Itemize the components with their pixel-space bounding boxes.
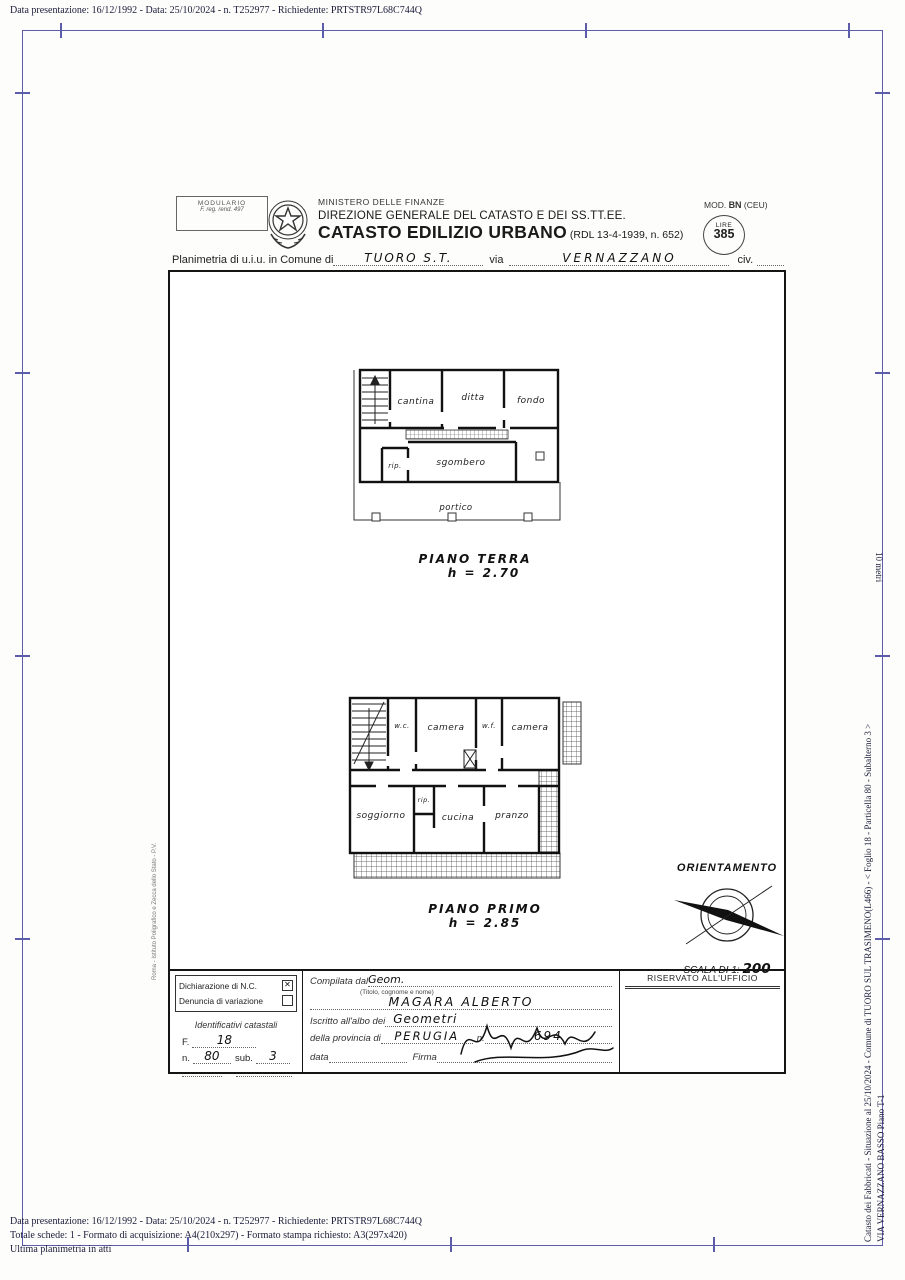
- frame-tick: [15, 655, 30, 657]
- label-via: via: [489, 254, 503, 266]
- frame-tick: [15, 372, 30, 374]
- label-civ: civ.: [737, 254, 753, 266]
- frame-tick: [848, 23, 850, 38]
- intestazione-row: Planimetria di u.i.u. in Comune di TUORO…: [172, 251, 784, 266]
- first-caption-height: h = 2.85: [405, 916, 565, 930]
- room-label-camera2: camera: [512, 723, 549, 733]
- numero-field: 80: [193, 1050, 231, 1064]
- blank-dotted-2: [236, 1068, 292, 1077]
- sub-label: sub.: [235, 1053, 253, 1064]
- first-floor-plan: w.c. camera w.f. camera soggiorno rip. c…: [336, 686, 586, 886]
- nome-field: MAGARA ALBERTO: [310, 996, 612, 1010]
- planimetria-box: cantina ditta fondo rip. sgombero portic…: [168, 270, 786, 1074]
- sub-field: 3: [256, 1050, 290, 1064]
- civ-field: [757, 251, 784, 266]
- bottom-margin-line2: Totale schede: 1 - Formato di acquisizio…: [10, 1230, 407, 1241]
- room-label-sgombero: sgombero: [436, 458, 485, 468]
- right-margin-metadata: Catasto dei Fabbricati - Situazione al 2…: [862, 724, 888, 1242]
- ground-floor-caption: PIANO TERRA h = 2.70: [395, 552, 555, 580]
- top-margin-metadata: Data presentazione: 16/12/1992 - Data: 2…: [10, 5, 422, 16]
- room-label-cantina: cantina: [398, 397, 435, 407]
- room-label-soggiorno: soggiorno: [356, 811, 405, 821]
- via-value: VERNAZZANO: [562, 251, 676, 265]
- bottom-margin-line1: Data presentazione: 16/12/1992 - Data: 2…: [10, 1216, 422, 1227]
- room-label-camera1: camera: [428, 723, 465, 733]
- signature: [455, 1010, 635, 1070]
- scanned-cadastral-document-page: Data presentazione: 16/12/1992 - Data: 2…: [0, 0, 905, 1280]
- compilata-row: Compilata dal Geom.: [310, 973, 612, 987]
- state-emblem-icon: [263, 194, 313, 252]
- provincia-label: della provincia di: [310, 1033, 381, 1044]
- mod-suffix: (CEU): [742, 200, 768, 210]
- frame-tick: [875, 372, 890, 374]
- modulario-line1: MODULARIO: [177, 200, 267, 207]
- nome-row: MAGARA ALBERTO: [310, 996, 612, 1010]
- albo-value: Geometri: [393, 1012, 457, 1026]
- data-label: data: [310, 1052, 329, 1063]
- via-field: VERNAZZANO: [509, 251, 729, 266]
- frame-tick: [322, 23, 324, 38]
- dichiarazione-checkbox: ✕: [282, 980, 293, 991]
- room-label-ditta: ditta: [461, 393, 484, 403]
- room-label-pranzo: pranzo: [494, 811, 529, 821]
- modulario-line2: F. reg. rend. 497: [177, 207, 267, 213]
- form-divider-1: [302, 969, 303, 1072]
- orientation-panel: ORIENTAMENTO SCALA DI 1: 200: [662, 862, 792, 977]
- mod-bn-label: MOD. BN (CEU): [704, 200, 768, 210]
- denuncia-label: Denuncia di variazione: [179, 996, 263, 1006]
- first-caption-title: PIANO PRIMO: [405, 902, 565, 916]
- right-margin-line2: VIA VERNAZZANO BASSO Piano T-1: [875, 724, 888, 1242]
- numero-value: 80: [204, 1049, 219, 1063]
- label-comune: Planimetria di u.i.u. in Comune di: [172, 254, 333, 266]
- declaration-row: Dichiarazione di N.C. ✕: [179, 978, 293, 993]
- room-label-wf: w.f.: [482, 722, 496, 730]
- compilata-label: Compilata dal: [310, 976, 368, 987]
- room-label-rip2: rip.: [418, 796, 431, 804]
- direction-line: DIREZIONE GENERALE DEL CATASTO E DEI SS.…: [318, 210, 626, 222]
- room-label-wc: w.c.: [394, 722, 410, 730]
- data-field: [329, 1049, 407, 1063]
- comune-value: TUORO S.T.: [364, 251, 452, 265]
- foglio-row: F. 18: [182, 1034, 292, 1048]
- frame-tick: [60, 23, 62, 38]
- declaration-box: Dichiarazione di N.C. ✕ Denuncia di vari…: [175, 975, 297, 1012]
- modulario-box: MODULARIO F. reg. rend. 497: [176, 196, 268, 231]
- first-floor-caption: PIANO PRIMO h = 2.85: [405, 902, 565, 930]
- scale-ruler-note: 10 metri: [874, 552, 884, 582]
- numero-label: n.: [182, 1053, 190, 1064]
- ministry-heading: MINISTERO DELLE FINANZE DIREZIONE GENERA…: [318, 197, 626, 222]
- room-label-cucina: cucina: [442, 813, 474, 823]
- numero-row: n. 80 sub. 3: [182, 1050, 300, 1064]
- frame-tick: [585, 23, 587, 38]
- bottom-margin-line3: Ultima planimetria in atti: [10, 1244, 111, 1255]
- frame-tick: [713, 1237, 715, 1252]
- frame-tick: [875, 92, 890, 94]
- frame-tick: [450, 1237, 452, 1252]
- printer-credit: Roma - Istituto Poligrafico e Zecca dell…: [152, 843, 158, 980]
- riservato-header: RISERVATO ALL'UFFICIO: [625, 973, 780, 989]
- dichiarazione-label: Dichiarazione di N.C.: [179, 981, 257, 991]
- document-title-row: CATASTO EDILIZIO URBANO (RDL 13-4-1939, …: [318, 222, 683, 243]
- nome-value: MAGARA ALBERTO: [389, 994, 534, 1009]
- comune-field: TUORO S.T.: [333, 251, 483, 266]
- ministry-line: MINISTERO DELLE FINANZE: [318, 197, 626, 207]
- ground-floor-plan: cantina ditta fondo rip. sgombero portic…: [346, 358, 568, 536]
- document-title: CATASTO EDILIZIO URBANO: [318, 222, 567, 242]
- lire-stamp: LIRE 385: [703, 215, 745, 255]
- room-label-fondo: fondo: [517, 396, 545, 406]
- denuncia-checkbox: [282, 995, 293, 1006]
- identificativi-title: Identificativi catastali: [175, 1020, 297, 1030]
- mod-code: BN: [729, 200, 742, 210]
- sub-value: 3: [269, 1049, 277, 1063]
- frame-tick: [15, 938, 30, 940]
- form-top-rule: [170, 969, 784, 971]
- document-title-suffix: (RDL 13-4-1939, n. 652): [567, 229, 683, 241]
- compilata-value: Geom.: [368, 973, 404, 986]
- frame-tick: [15, 92, 30, 94]
- foglio-field: 18: [192, 1034, 256, 1048]
- provincia-value: PERUGIA: [394, 1029, 459, 1043]
- foglio-value: 18: [217, 1033, 232, 1047]
- mod-label: MOD.: [704, 200, 729, 210]
- compass-icon: [664, 874, 790, 956]
- room-label-portico: portico: [438, 503, 472, 513]
- ground-caption-height: h = 2.70: [395, 566, 555, 580]
- iscritto-label: Iscritto all'albo dei: [310, 1016, 385, 1027]
- firma-label: Firma: [413, 1052, 437, 1063]
- blank-dotted-1: [182, 1068, 222, 1077]
- orientation-title: ORIENTAMENTO: [662, 862, 792, 874]
- foglio-label: F.: [182, 1037, 189, 1048]
- compilata-field: Geom.: [368, 973, 612, 987]
- frame-tick: [875, 655, 890, 657]
- lire-value: 385: [704, 229, 744, 240]
- room-label-rip: rip.: [388, 462, 402, 470]
- right-margin-line1: Catasto dei Fabbricati - Situazione al 2…: [862, 724, 875, 1242]
- variation-row: Denuncia di variazione: [179, 993, 293, 1008]
- ground-caption-title: PIANO TERRA: [395, 552, 555, 566]
